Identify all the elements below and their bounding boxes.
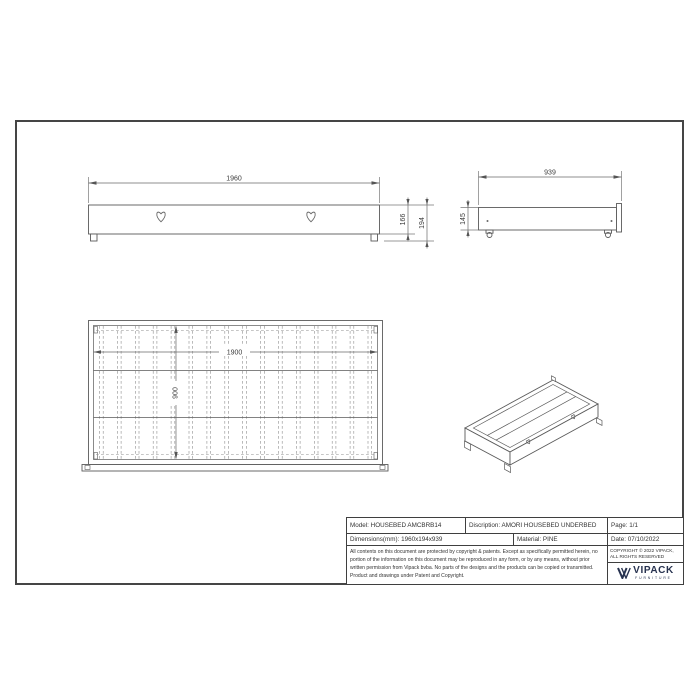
vipack-logo-mark-icon [617, 567, 631, 579]
brand-subtitle: FURNITURE [633, 577, 674, 580]
model-cell: Model: HOUSEBED AMCBRB14 [347, 518, 466, 533]
side-caster-left [486, 230, 493, 238]
side-depth-dim-label: 939 [544, 170, 556, 177]
front-width-dim-label: 1960 [226, 176, 242, 183]
front-panel-height-dim-label: 166 [400, 214, 407, 226]
front-view [89, 177, 435, 249]
top-length-dim-label: 1900 [227, 350, 243, 357]
description-cell: Discription: AMORI HOUSEBED UNDERBED [466, 518, 608, 533]
page-cell: Page: 1/1 [608, 518, 683, 533]
iso-foot-right [597, 418, 603, 426]
vipack-logo: VIPACK FURNITURE [608, 563, 683, 584]
isometric-view [465, 376, 603, 473]
front-caster-left [91, 234, 98, 241]
legal-text: All contents on this document are protec… [347, 546, 608, 584]
side-view [461, 171, 622, 238]
side-caster-right [605, 230, 612, 238]
drawing-sheet-page: 1960 166 194 939 145 [0, 0, 700, 700]
technical-drawing: 1960 166 194 939 145 [0, 0, 700, 700]
title-block-row-3: All contents on this document are protec… [347, 546, 683, 584]
title-block-row-1: Model: HOUSEBED AMCBRB14 Discription: AM… [347, 518, 683, 534]
dimensions-cell: Dimensions(mm): 1960x194x939 [347, 534, 514, 545]
title-block: Model: HOUSEBED AMCBRB14 Discription: AM… [346, 517, 684, 585]
top-view [82, 321, 388, 472]
front-caster-right [371, 234, 378, 241]
material-cell: Material: PINE [514, 534, 608, 545]
front-total-height-dim-label: 194 [419, 217, 426, 229]
date-cell: Date: 07/10/2022 [608, 534, 683, 545]
top-width-dim-label: 900 [173, 387, 180, 399]
title-block-row-2: Dimensions(mm): 1960x194x939 Material: P… [347, 534, 683, 546]
brand-name: VIPACK [633, 566, 674, 576]
copyright-text: COPYRIGHT © 2022 VIPACK, ALL RIGHTS RESE… [608, 546, 683, 563]
side-height-dim-label: 145 [460, 213, 467, 225]
